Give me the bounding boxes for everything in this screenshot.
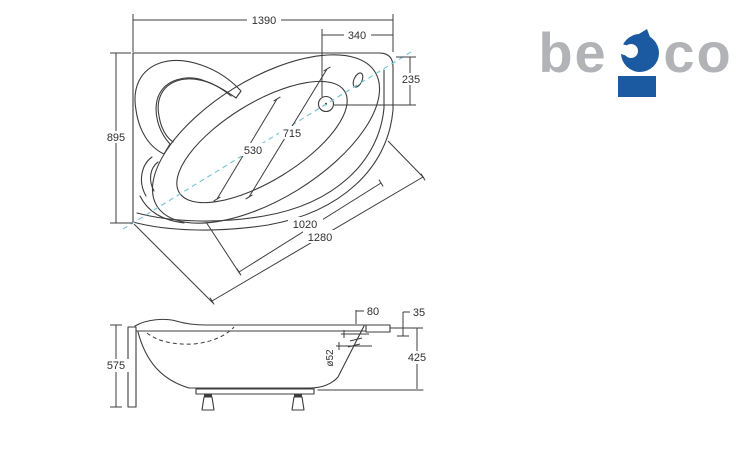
dim-total-height: 575 xyxy=(102,325,130,407)
drain-hole-marks: ø52 xyxy=(325,330,372,367)
dim-deck-width-label: 80 xyxy=(367,306,379,318)
dim-ext-right xyxy=(388,141,424,178)
logo-underline-block xyxy=(618,76,656,97)
dim-front-edge-inner-label: 1020 xyxy=(293,219,317,231)
dim-tick-left xyxy=(237,269,241,276)
dim-overall-width-label: 1390 xyxy=(252,15,276,27)
dim-rim-drop-label: 35 xyxy=(413,307,425,319)
dim-front-edge-outer-label: 1280 xyxy=(308,232,332,244)
dim-tick-bottom xyxy=(246,195,253,199)
dim-tick-bottom xyxy=(214,197,221,201)
dim-inner-width-rear: 530 xyxy=(214,97,281,201)
dim-drain-diameter-label: ø52 xyxy=(325,349,336,367)
side-view: ø52 575 80 35 xyxy=(102,306,432,410)
dim-total-height-label: 575 xyxy=(107,360,125,372)
dim-overall-depth-label: 895 xyxy=(107,132,125,144)
skirt-bottom-arc xyxy=(140,196,184,223)
dim-tick-top xyxy=(274,97,281,101)
dim-tap-offset-label: 340 xyxy=(348,30,366,42)
rim-top-line xyxy=(135,319,390,326)
technical-drawing-page: 1390 340 235 895 xyxy=(0,0,748,454)
overflow-oval xyxy=(351,72,365,89)
top-view: 1390 340 235 895 xyxy=(101,14,425,304)
dim-shell-height: 425 xyxy=(390,328,432,389)
foot-cup xyxy=(202,397,214,410)
foot-left xyxy=(202,394,214,410)
headrest-band xyxy=(135,61,241,154)
logo-text-co: co xyxy=(663,21,732,84)
water-drop-icon xyxy=(610,29,659,72)
logo-text-be: be xyxy=(538,21,607,84)
dim-overall-depth: 895 xyxy=(101,53,133,223)
foot-cup xyxy=(292,397,304,410)
dim-tick-top xyxy=(324,67,331,71)
dim-ext-left xyxy=(134,224,213,303)
seat-hidden-contour xyxy=(147,327,234,344)
diagonal-axis-line xyxy=(123,52,411,229)
dim-front-edge-inner: 1020 xyxy=(206,180,383,276)
dim-tick-right xyxy=(379,180,383,187)
bathtub-technical-drawing: 1390 340 235 895 xyxy=(0,0,748,454)
tap-deck xyxy=(366,325,390,332)
headrest-inner-contour xyxy=(158,79,231,142)
dim-deck-width: 80 xyxy=(356,306,379,324)
dim-tick-right xyxy=(421,174,425,181)
foot-right xyxy=(292,394,304,410)
dim-inner-width-rear-label: 530 xyxy=(244,145,262,157)
support-rail xyxy=(196,389,314,394)
dim-tap-inset-label: 235 xyxy=(402,74,420,86)
basin-outer-edge xyxy=(126,21,407,257)
dim-inner-width-front-label: 715 xyxy=(283,128,301,140)
besco-logo: be co xyxy=(538,21,732,97)
dim-rim-drop: 35 xyxy=(397,307,425,336)
dim-shell-height-label: 425 xyxy=(408,352,426,364)
